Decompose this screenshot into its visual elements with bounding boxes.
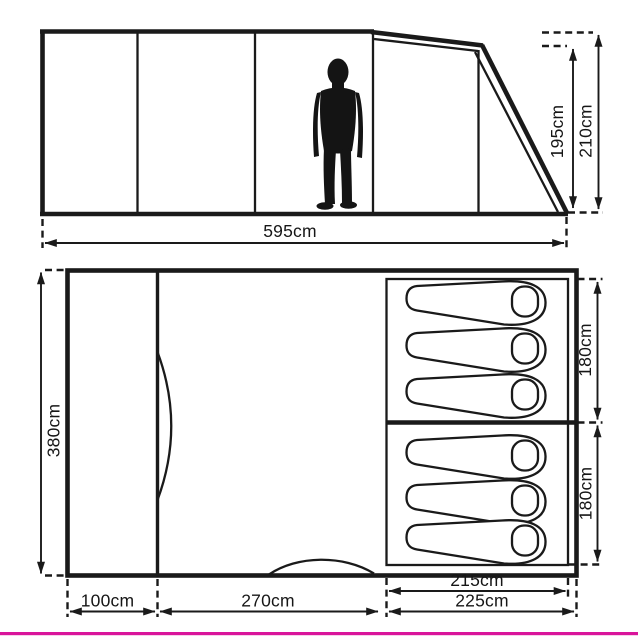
dimension-front-section: 100cm	[68, 579, 158, 617]
sleeping-bag-icon	[407, 328, 546, 372]
side-elevation-view	[40, 30, 568, 214]
figure-right-leg	[340, 148, 352, 203]
figure-head	[328, 59, 349, 86]
dimension-total-length: 595cm	[43, 217, 567, 248]
sleeping-bags-top-room	[407, 281, 546, 418]
dimension-label-middle-section: 270cm	[241, 591, 295, 611]
floor-plan-view	[68, 271, 577, 576]
dimension-label-total-length: 595cm	[263, 221, 317, 241]
dimension-eave-height: 195cm	[542, 46, 573, 208]
dimension-bedroom-top-depth: 180cm	[575, 279, 603, 423]
dimension-label-bedroom-outer-width: 225cm	[455, 591, 509, 611]
dimension-label-front-section: 100cm	[81, 591, 135, 611]
dimension-label-bedroom-inner-width: 215cm	[450, 570, 504, 590]
sleeping-bag-icon	[407, 435, 546, 479]
rear-slope-inner-edge	[475, 52, 558, 212]
roof-slant-outer-edge	[371, 32, 483, 46]
dimension-total-width: 380cm	[41, 270, 64, 576]
sleeping-bag-icon	[407, 374, 546, 418]
dimension-label-total-width: 380cm	[44, 404, 64, 458]
figure-right-foot	[340, 201, 357, 209]
inner-door-arc	[158, 352, 172, 500]
dimension-middle-section: 270cm	[160, 591, 378, 612]
entrance-door-arch	[269, 560, 374, 575]
tent-dimensions-figure: 595cm 195cm 210cm	[0, 0, 638, 638]
dimension-bedroom-bottom-depth: 180cm	[569, 426, 603, 565]
sleeping-bag-icon	[407, 520, 546, 564]
human-figure	[313, 59, 363, 210]
figure-torso	[320, 88, 356, 154]
sleeping-bag-icon	[407, 480, 546, 524]
sleeping-bag-icon	[407, 281, 546, 325]
tent-dimension-diagram: 595cm 195cm 210cm	[0, 0, 638, 638]
figure-left-leg	[324, 148, 336, 204]
dimension-label-eave-height: 195cm	[547, 105, 567, 159]
dimension-label-bedroom-bottom-depth: 180cm	[576, 467, 596, 521]
figure-left-arm	[313, 92, 321, 157]
figure-right-arm	[355, 92, 363, 158]
figure-left-foot	[317, 202, 334, 210]
dimension-label-bedroom-top-depth: 180cm	[575, 323, 595, 377]
sleeping-bags-bottom-room	[407, 435, 546, 564]
dimension-label-peak-height: 210cm	[576, 104, 596, 158]
accent-underline-bar	[0, 632, 638, 635]
